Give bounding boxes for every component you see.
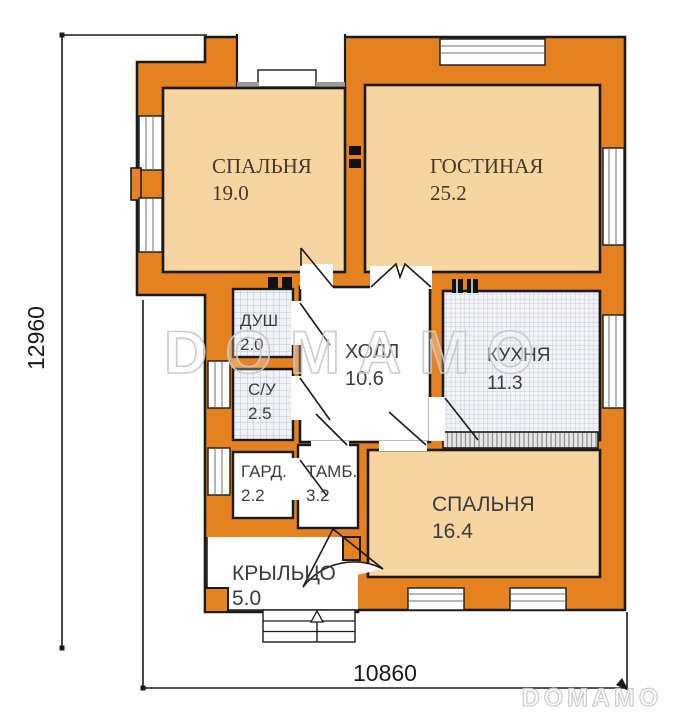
window-icon <box>603 315 624 408</box>
room-label: ТАМБ. <box>306 462 357 481</box>
room-area: 2.2 <box>241 486 265 505</box>
room-bedroom-1 <box>163 88 345 272</box>
window-icon <box>440 39 545 65</box>
window-icon <box>139 198 162 252</box>
dimension-width-label: 10860 <box>353 660 417 686</box>
dimension-height-label: 12960 <box>23 306 49 370</box>
room-label: ГОСТИНАЯ <box>430 154 543 178</box>
watermark-corner: DOMAMO <box>522 684 663 712</box>
room-area: 2.5 <box>248 404 272 423</box>
window-icon <box>208 448 230 495</box>
door-icon <box>370 264 432 289</box>
room-area: 19.0 <box>212 181 249 205</box>
window-icon <box>510 588 566 610</box>
floor-plan-page: 12960 10860 <box>0 0 676 718</box>
room-label: СПАЛЬНЯ <box>212 154 312 178</box>
room-area: 3.2 <box>306 486 330 505</box>
wardrobe-strip <box>443 432 598 448</box>
room-area: 5.0 <box>232 587 261 610</box>
window-icon <box>139 116 162 170</box>
watermark-center: DOMAMO <box>164 319 552 386</box>
window-icon <box>408 588 464 610</box>
room-label: ГАРД. <box>241 462 287 481</box>
room-area: 25.2 <box>430 181 467 205</box>
room-area: 16.4 <box>432 520 473 543</box>
floor-plan: 12960 10860 <box>0 0 676 718</box>
facade-niche <box>237 34 345 90</box>
room-label: КРЫЛЬЦО <box>232 562 336 585</box>
window-icon <box>603 148 624 245</box>
entrance-steps <box>263 610 355 642</box>
room-label: СПАЛЬНЯ <box>432 493 535 516</box>
room-living-room <box>365 85 600 272</box>
